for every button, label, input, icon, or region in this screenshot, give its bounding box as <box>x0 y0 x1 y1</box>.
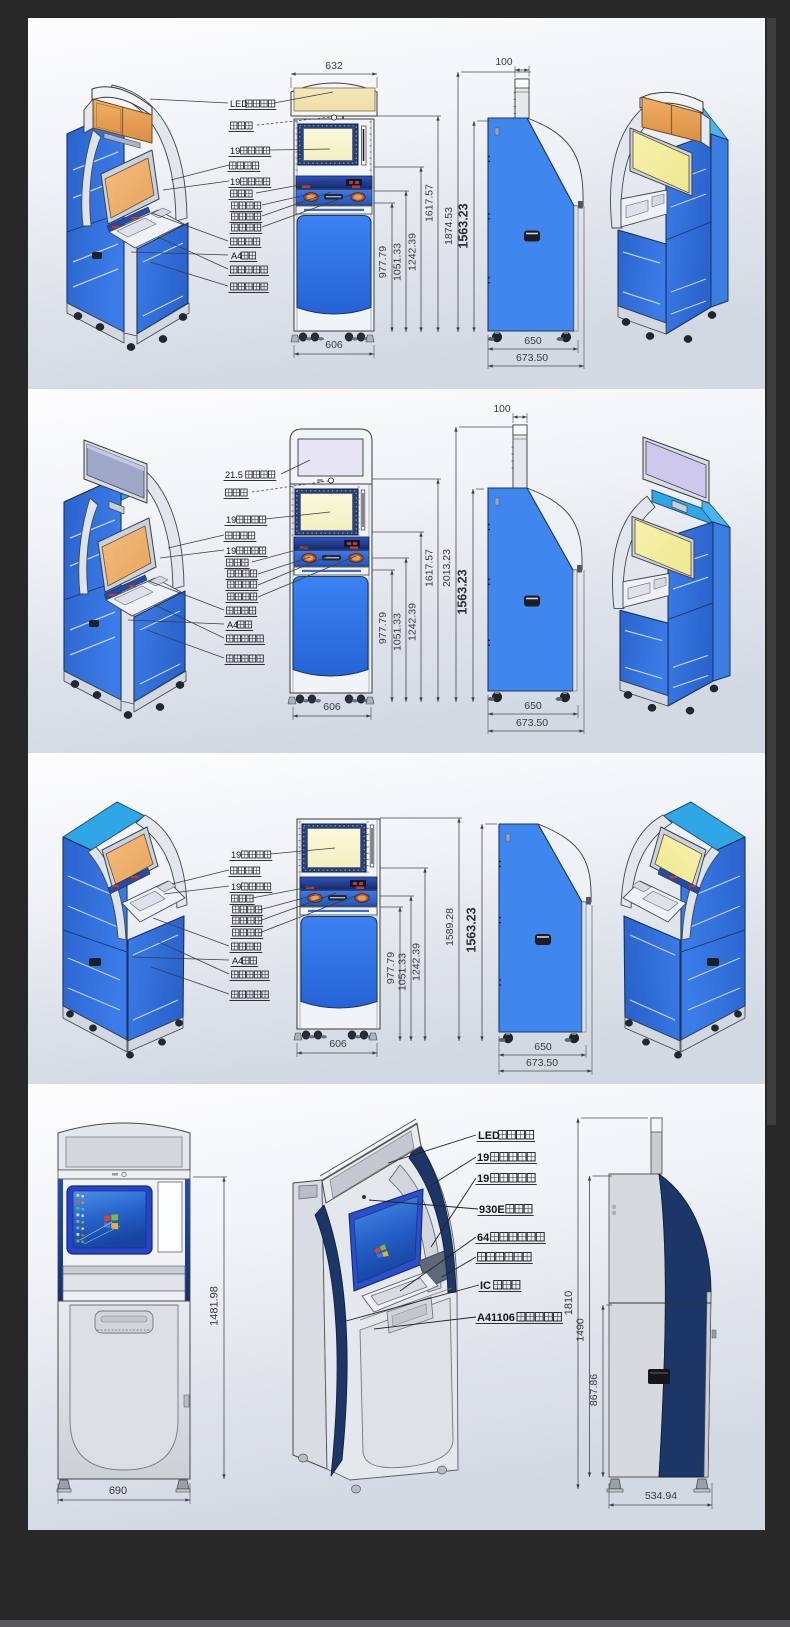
svg-text:1051.33: 1051.33 <box>392 613 404 651</box>
svg-text:LED: LED <box>478 1130 500 1142</box>
svg-text:100: 100 <box>494 404 511 415</box>
svg-text:1481.98: 1481.98 <box>209 1286 221 1326</box>
svg-text:19: 19 <box>231 850 241 860</box>
svg-text:1242.39: 1242.39 <box>411 943 423 981</box>
svg-text:1242.39: 1242.39 <box>407 233 419 271</box>
svg-text:64: 64 <box>477 1232 490 1244</box>
svg-text:606: 606 <box>329 1038 347 1050</box>
svg-text:673.50: 673.50 <box>526 1057 558 1069</box>
svg-text:650: 650 <box>534 1041 552 1053</box>
svg-text:632: 632 <box>325 60 343 72</box>
svg-text:650: 650 <box>524 700 542 712</box>
svg-text:19: 19 <box>231 882 241 892</box>
svg-text:19: 19 <box>477 1152 489 1164</box>
svg-text:977.79: 977.79 <box>377 246 389 278</box>
svg-text:19: 19 <box>226 546 236 556</box>
svg-text:977.79: 977.79 <box>385 952 397 984</box>
svg-text:1874.53: 1874.53 <box>443 207 455 245</box>
svg-text:673.50: 673.50 <box>516 717 548 729</box>
svg-text:1051.33: 1051.33 <box>392 243 404 281</box>
svg-text:650: 650 <box>524 335 542 347</box>
svg-text:2013.23: 2013.23 <box>441 549 453 587</box>
svg-text:1810: 1810 <box>563 1291 575 1315</box>
svg-text:A4: A4 <box>227 620 238 630</box>
svg-text:1617.57: 1617.57 <box>424 549 436 587</box>
svg-text:1589.28: 1589.28 <box>444 908 456 946</box>
svg-text:A4: A4 <box>231 251 242 261</box>
svg-text:A4: A4 <box>232 956 243 966</box>
svg-text:930E: 930E <box>479 1204 505 1216</box>
svg-text:21.5: 21.5 <box>225 470 243 480</box>
svg-text:1242.39: 1242.39 <box>407 603 419 641</box>
svg-text:1563.23: 1563.23 <box>456 569 470 614</box>
svg-text:19: 19 <box>226 515 236 525</box>
svg-text:1051.33: 1051.33 <box>397 953 409 991</box>
svg-text:690: 690 <box>109 1485 127 1497</box>
svg-text:100: 100 <box>496 57 513 68</box>
svg-text:1490: 1490 <box>575 1318 587 1342</box>
svg-text:606: 606 <box>323 701 341 713</box>
svg-text:IC: IC <box>480 1280 491 1292</box>
svg-text:977.79: 977.79 <box>377 612 389 644</box>
svg-text:19: 19 <box>477 1173 489 1185</box>
svg-text:A41106: A41106 <box>477 1312 515 1324</box>
svg-text:867.86: 867.86 <box>588 1374 600 1406</box>
svg-text:19: 19 <box>230 146 240 156</box>
svg-text:19: 19 <box>230 177 240 187</box>
svg-text:606: 606 <box>325 339 343 351</box>
svg-text:1617.57: 1617.57 <box>424 184 436 222</box>
svg-text:534.94: 534.94 <box>645 1490 677 1502</box>
svg-text:673.50: 673.50 <box>516 352 548 364</box>
svg-text:1563.23: 1563.23 <box>465 907 479 952</box>
svg-text:1563.23: 1563.23 <box>457 203 471 248</box>
